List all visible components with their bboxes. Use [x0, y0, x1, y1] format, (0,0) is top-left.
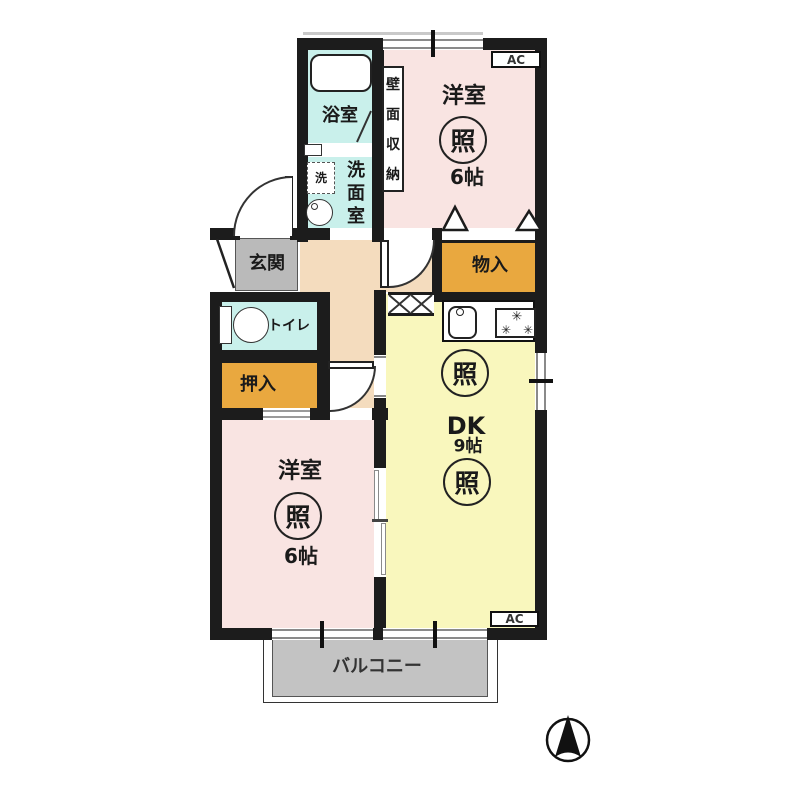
stove-burner-icon: ✳	[512, 311, 523, 324]
wall	[310, 408, 330, 420]
label-washroom-char: 面	[347, 182, 365, 205]
light-symbol: 照	[443, 458, 491, 506]
bathtub	[310, 54, 372, 92]
closet-door-line	[442, 240, 535, 243]
window-tick	[433, 621, 437, 648]
label-laundry: 洗	[315, 172, 327, 184]
wall	[374, 397, 386, 468]
label-washroom: 洗 面 室	[345, 159, 367, 228]
light-symbol-text: 照	[450, 122, 475, 158]
light-symbol: 照	[439, 116, 487, 164]
bedroom-ne-door-leaf	[380, 240, 389, 288]
label-washroom-char: 洗	[347, 159, 365, 182]
label-dk: DK	[447, 414, 486, 438]
label-wall-storage-char: 収	[386, 130, 400, 160]
ac-badge: AC	[491, 51, 541, 68]
light-symbol-text: 照	[452, 355, 477, 391]
wall	[210, 292, 330, 302]
compass-north-icon	[547, 715, 589, 761]
wall	[372, 228, 384, 240]
front-door-swing	[233, 176, 292, 236]
wall	[210, 408, 263, 420]
label-balcony: バルコニー	[332, 658, 422, 676]
wall	[317, 292, 330, 418]
dk-opening	[374, 355, 386, 398]
label-wall-storage-char: 壁	[386, 70, 400, 100]
label-wall-storage-char: 面	[386, 100, 400, 130]
window-tick	[529, 379, 553, 383]
kitchen-faucet	[456, 308, 464, 316]
label-bedroom-ne: 洋室	[442, 86, 486, 108]
fridge-space	[388, 292, 434, 316]
light-symbol-text: 照	[454, 464, 479, 500]
bedroom-ne-door-opening	[384, 228, 432, 240]
label-closet-oshiire: 押入	[240, 376, 276, 394]
label-wall-storage: 壁 面 収 納	[383, 70, 403, 190]
washroom-door-opening	[330, 228, 372, 240]
wall	[210, 628, 272, 640]
toilet-tank	[219, 306, 232, 344]
sliding-door	[374, 468, 386, 577]
light-symbol-text: 照	[285, 498, 310, 534]
wall	[373, 628, 383, 640]
label-washroom-char: 室	[347, 205, 365, 228]
entrance-side-opening	[210, 240, 222, 292]
wall	[297, 228, 330, 240]
floorplan: ✳ ✳ ✳ AC AC 浴室 洗 面 室 壁 面 収 納 洗 洋室 照	[0, 0, 800, 800]
window-tick	[431, 30, 435, 57]
label-bath: 浴室	[322, 107, 358, 125]
wall-niche	[304, 144, 322, 156]
wall	[535, 38, 547, 640]
label-dk-size: 9帖	[454, 439, 483, 456]
label-bedroom-sw-size: 6帖	[284, 546, 318, 566]
label-bedroom-ne-size: 6帖	[450, 167, 484, 187]
light-symbol: 照	[441, 349, 489, 397]
stove-burner-icon: ✳	[501, 324, 511, 336]
ac-badge: AC	[490, 611, 539, 627]
wall	[374, 290, 386, 357]
eave-line	[303, 32, 483, 35]
oshiire-fusuma-opening	[263, 408, 310, 420]
wall	[487, 628, 535, 640]
toilet-bowl	[233, 307, 269, 343]
label-wall-storage-char: 納	[386, 160, 400, 190]
wall	[374, 577, 386, 628]
washing-machine-icon	[306, 199, 333, 226]
window-tick	[320, 621, 324, 648]
label-bedroom-sw: 洋室	[278, 461, 322, 483]
label-closet-monoiri: 物入	[472, 257, 508, 275]
stove-burner-icon: ✳	[523, 324, 533, 336]
label-entrance: 玄関	[249, 255, 285, 273]
light-symbol: 照	[274, 492, 322, 540]
label-toilet: トイレ	[268, 319, 310, 333]
bedroom-sw-door-leaf	[328, 361, 374, 369]
wall	[217, 350, 317, 363]
